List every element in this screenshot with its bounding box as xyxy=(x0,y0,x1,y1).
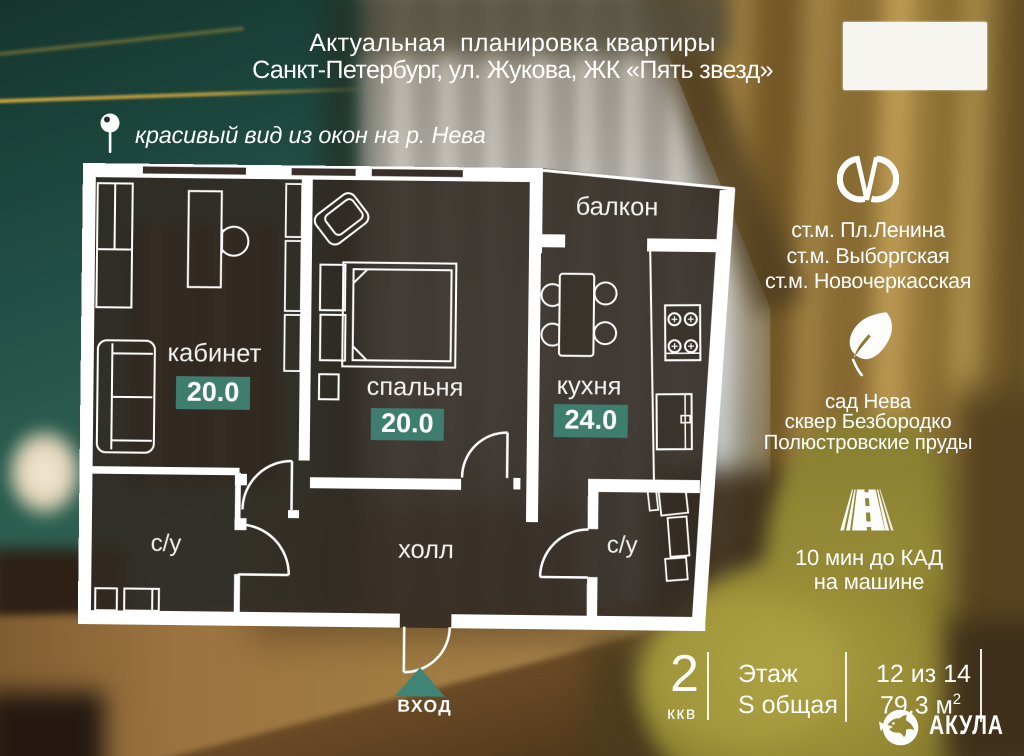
svg-text:с/у: с/у xyxy=(607,531,638,558)
svg-text:спальня: спальня xyxy=(366,373,463,402)
svg-text:с/у: с/у xyxy=(151,530,182,557)
svg-text:20.0: 20.0 xyxy=(187,377,240,408)
svg-text:кухня: кухня xyxy=(556,372,621,401)
svg-text:24.0: 24.0 xyxy=(564,405,617,436)
svg-text:кабинет: кабинет xyxy=(167,339,261,368)
svg-text:ВХОД: ВХОД xyxy=(397,696,452,717)
svg-text:20.0: 20.0 xyxy=(381,408,434,439)
svg-text:холл: холл xyxy=(398,536,454,565)
svg-text:балкон: балкон xyxy=(575,193,658,222)
